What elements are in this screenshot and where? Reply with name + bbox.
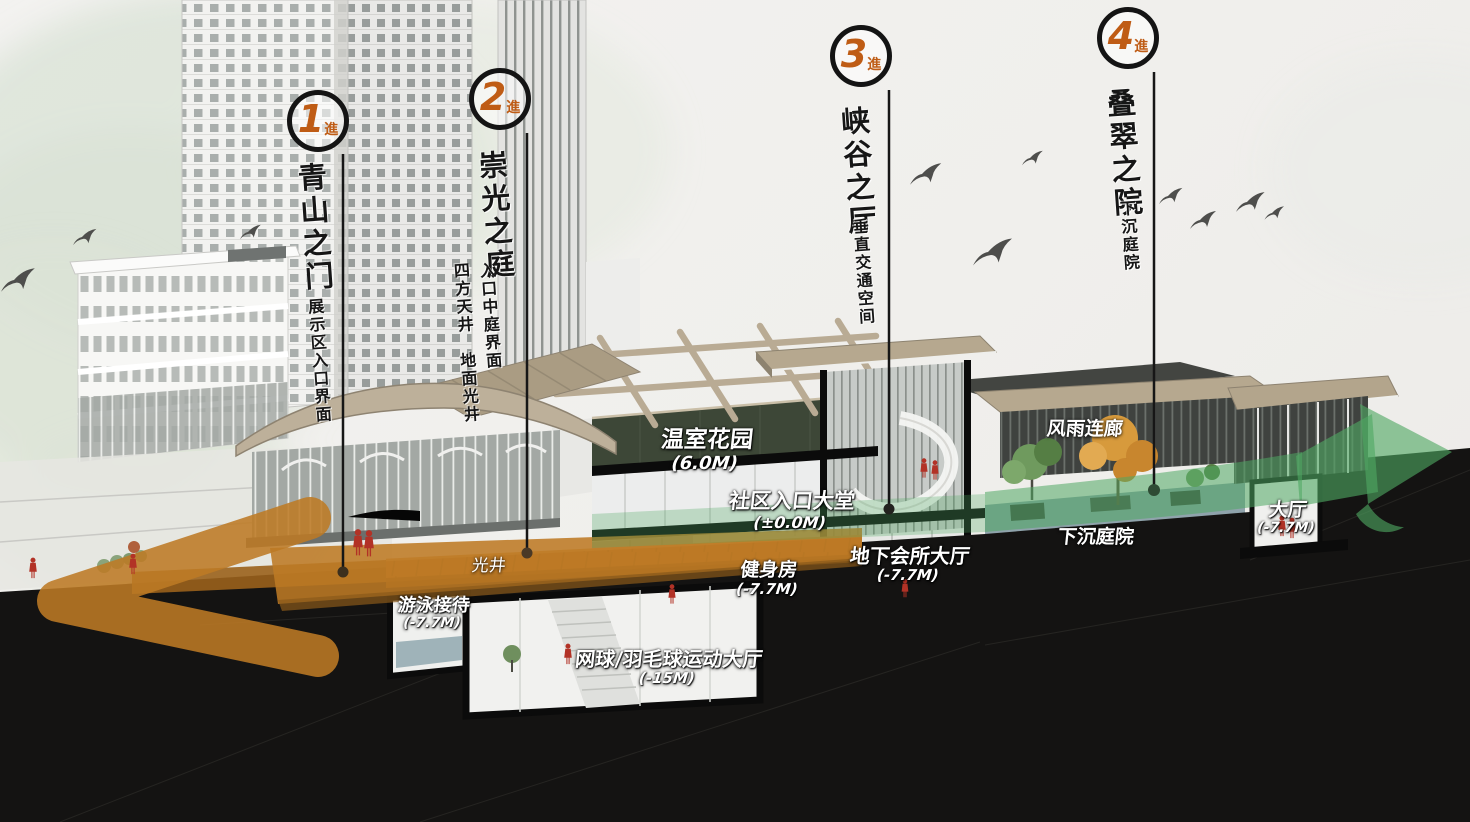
illustration — [0, 0, 1470, 822]
label-gym-name: 健身房 — [739, 559, 798, 581]
label-greenhouse: 温室花园 (6.0M) — [658, 428, 755, 474]
architectural-section-diagram: 1 進 2 進 3 進 4 進 青山之门 展示区入口界面 崇光之庭 入口中庭界面… — [0, 0, 1470, 822]
label-greenhouse-name: 温室花园 — [660, 427, 755, 453]
badge-3-suffix: 進 — [867, 54, 881, 74]
label-light-well: 光井 — [471, 551, 508, 576]
label-swim-reception: 游泳接待 (-7.7M) — [395, 596, 471, 632]
zone-4-subtitle: 下沉庭院 — [1114, 199, 1143, 272]
badge-2-suffix: 進 — [506, 97, 520, 117]
label-tennis-hall: 网球/羽毛球运动大厅 (-15M) — [572, 648, 763, 687]
badge-4-number: 4 — [1108, 17, 1134, 55]
badge-3: 3 進 — [830, 25, 892, 87]
zone-2-subtitles: 入口中庭界面 四方天井 地面光井 — [452, 262, 504, 424]
label-hall-level: (-7.7M) — [1256, 521, 1315, 537]
badge-4: 4 進 — [1097, 7, 1159, 69]
label-club-hall-level: (-7.7M) — [847, 567, 969, 584]
label-gym: 健身房 (-7.7M) — [735, 560, 800, 598]
badge-4-suffix: 進 — [1134, 36, 1148, 56]
label-tennis-hall-name: 网球/羽毛球运动大厅 — [574, 647, 764, 671]
label-community-lobby-level: (±0.0M) — [726, 514, 854, 532]
label-swim-reception-name: 游泳接待 — [397, 595, 471, 616]
badge-1: 1 進 — [287, 90, 349, 152]
badge-2: 2 進 — [469, 68, 531, 130]
label-sunken-courtyard: 下沉庭院 — [1057, 522, 1136, 549]
label-hall-name: 大厅 — [1268, 499, 1308, 521]
label-gym-level: (-7.7M) — [735, 581, 798, 598]
label-hall: 大厅 (-7.7M) — [1256, 500, 1317, 537]
label-covered-corridor: 风雨连廊 — [1046, 414, 1125, 441]
label-community-lobby: 社区入口大堂 (±0.0M) — [726, 490, 856, 531]
badge-1-suffix: 進 — [324, 119, 338, 139]
badge-1-number: 1 — [298, 100, 324, 138]
label-community-lobby-name: 社区入口大堂 — [728, 489, 857, 513]
badge-3-number: 3 — [841, 35, 867, 73]
label-swim-reception-level: (-7.7M) — [395, 616, 469, 632]
label-greenhouse-level: (6.0M) — [658, 454, 752, 474]
label-club-hall-name: 地下会所大厅 — [849, 544, 972, 568]
label-club-hall: 地下会所大厅 (-7.7M) — [847, 545, 971, 584]
badge-2-number: 2 — [480, 78, 506, 116]
label-tennis-hall-level: (-15M) — [572, 670, 761, 687]
